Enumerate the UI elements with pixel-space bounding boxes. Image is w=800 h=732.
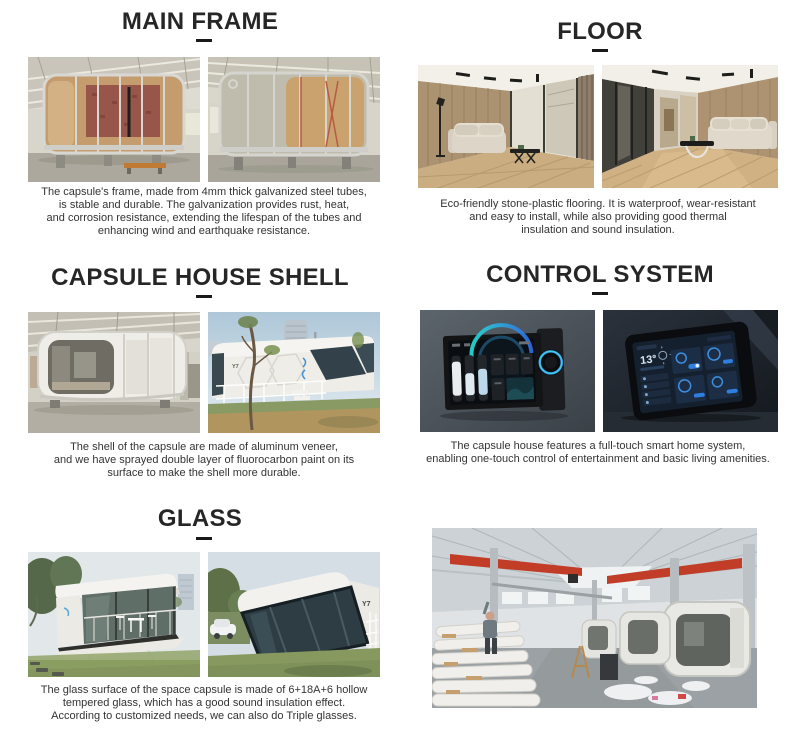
shell-title: CAPSULE HOUSE SHELL — [0, 266, 400, 290]
glass-photo-right: Y7 — [208, 552, 380, 677]
control-photos: 13° — [420, 310, 778, 432]
shell-photo-right: Y7 — [208, 312, 380, 433]
tablet-temperature-readout: 13° — [640, 353, 658, 367]
control-photo-tablet: 13° — [603, 310, 778, 432]
glass-description: The glass surface of the space capsule i… — [0, 684, 414, 723]
floor-title: FLOOR — [400, 20, 800, 44]
main-frame-title-underline — [196, 39, 212, 42]
capsule-house-product-page: { "style": { "title_color": "#262626", "… — [0, 0, 800, 732]
control-title: CONTROL SYSTEM — [400, 263, 800, 287]
glass-title-underline — [196, 537, 212, 540]
floor-photo-left — [418, 65, 594, 188]
shell-photos: Y7 — [28, 312, 380, 433]
glass-photos: Y7 — [28, 552, 380, 677]
shell-title-underline — [196, 295, 212, 298]
main-frame-title: MAIN FRAME — [0, 10, 400, 34]
shell-photo-left — [28, 312, 200, 433]
main-frame-photos — [28, 57, 380, 182]
glass-photo-left — [28, 552, 200, 677]
glass-model-label: Y7 — [362, 601, 371, 608]
shell-description: The shell of the capsule are made of alu… — [0, 441, 414, 480]
glass-title: GLASS — [0, 507, 400, 531]
control-title-underline — [592, 292, 608, 295]
shell-model-label: Y7 — [232, 364, 239, 370]
floor-photos — [418, 65, 778, 188]
floor-photo-right — [602, 65, 778, 188]
floor-description: Eco-friendly stone-plastic flooring. It … — [388, 198, 800, 237]
main-frame-photo-right — [208, 57, 380, 182]
factory-assembly-photo — [432, 528, 757, 708]
floor-title-underline — [592, 49, 608, 52]
main-frame-photo-left — [28, 57, 200, 182]
main-frame-description: The capsule's frame, made from 4mm thick… — [0, 186, 414, 238]
control-photo-wall-panel — [420, 310, 595, 432]
control-description: The capsule house features a full-touch … — [388, 440, 800, 466]
